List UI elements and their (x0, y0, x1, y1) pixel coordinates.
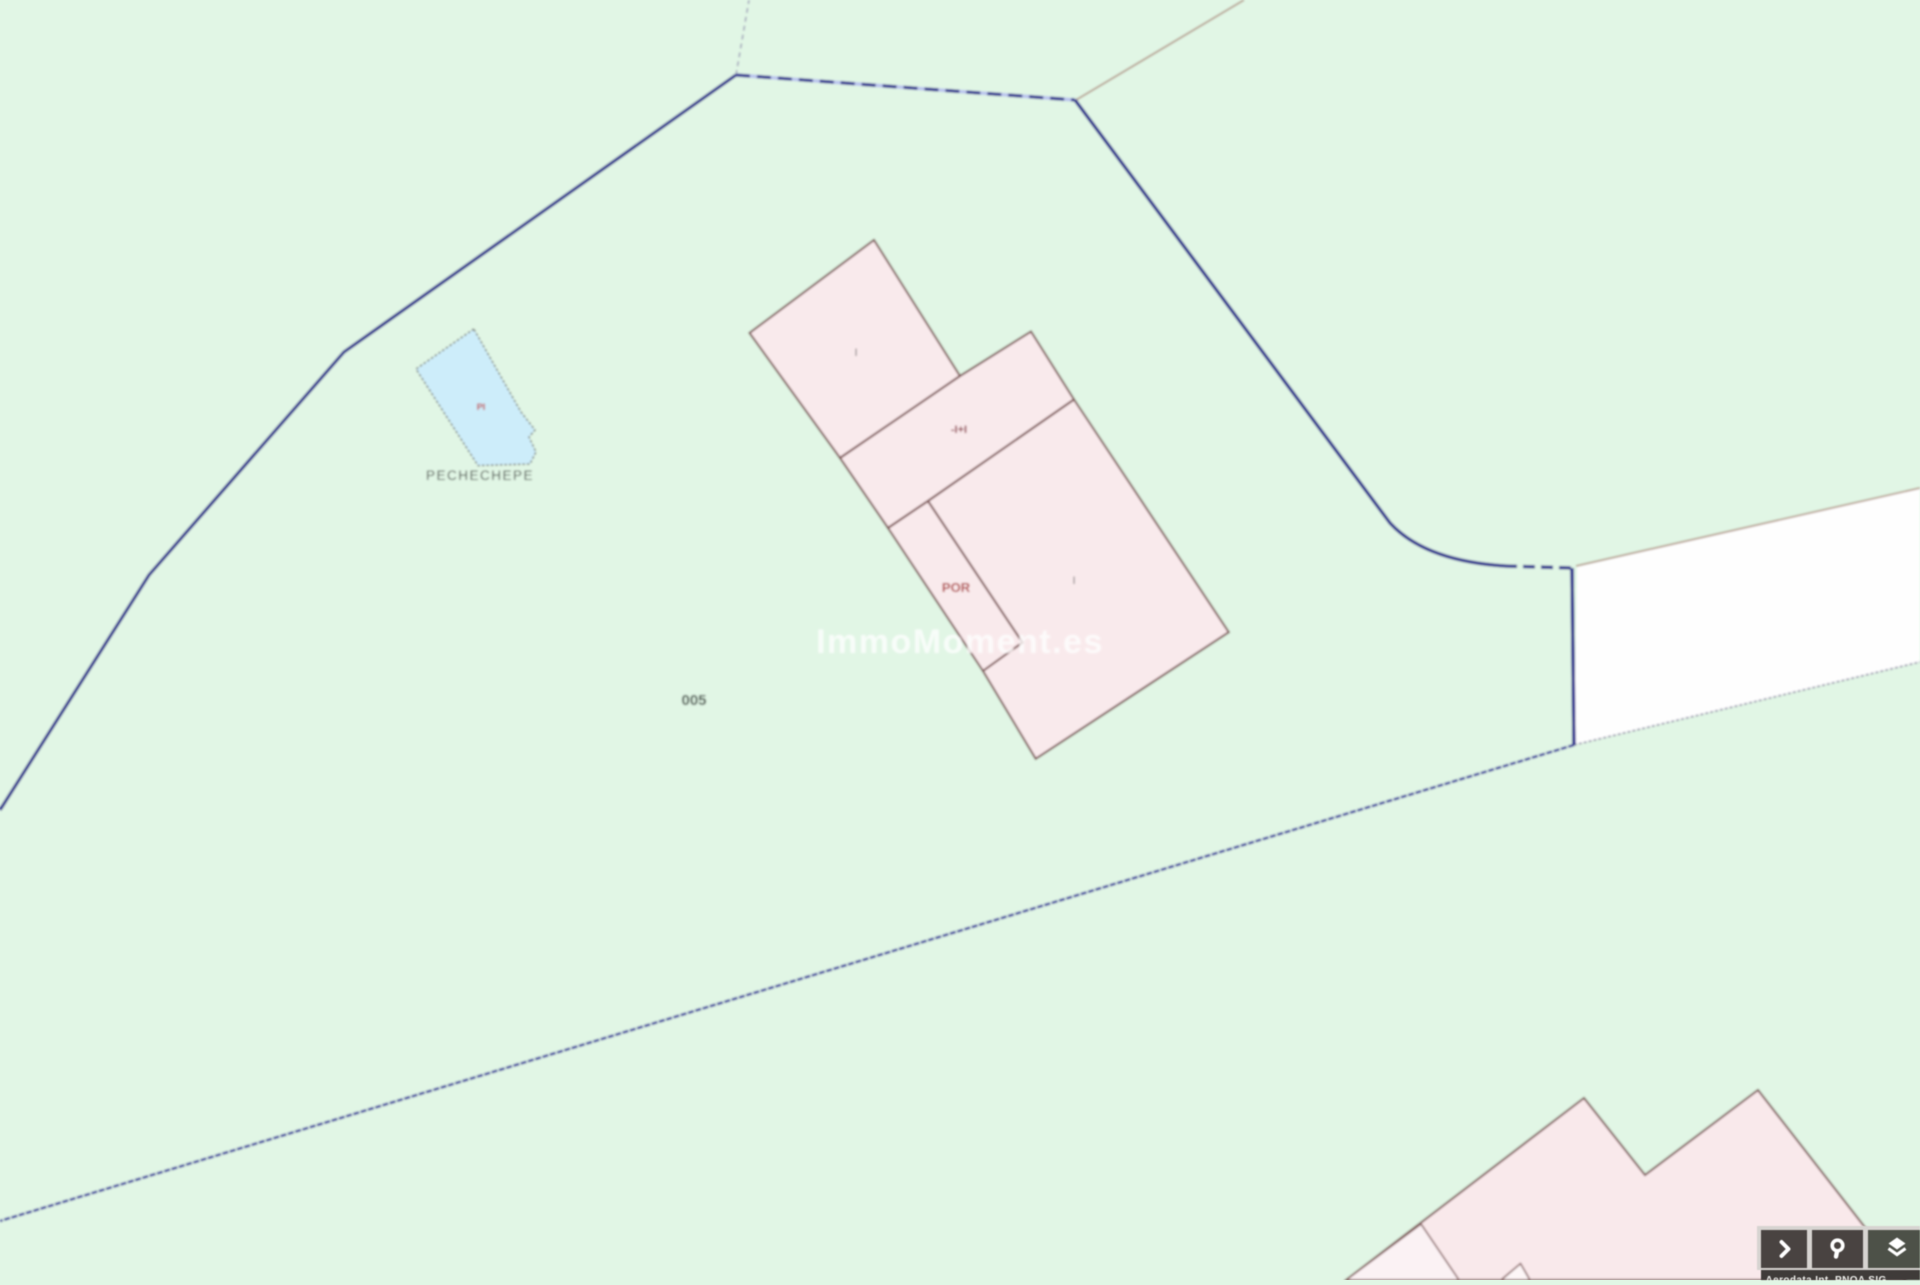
svg-text:005: 005 (681, 692, 706, 709)
svg-text:POR: POR (942, 580, 971, 595)
svg-text:I: I (1072, 575, 1075, 587)
svg-text:PI: PI (477, 402, 486, 412)
svg-text:I: I (854, 347, 857, 359)
svg-text:PECHECHEPE: PECHECHEPE (426, 468, 534, 483)
svg-text:-I+I: -I+I (951, 424, 967, 436)
svg-text:ImmoMoment.es: ImmoMoment.es (816, 623, 1104, 661)
